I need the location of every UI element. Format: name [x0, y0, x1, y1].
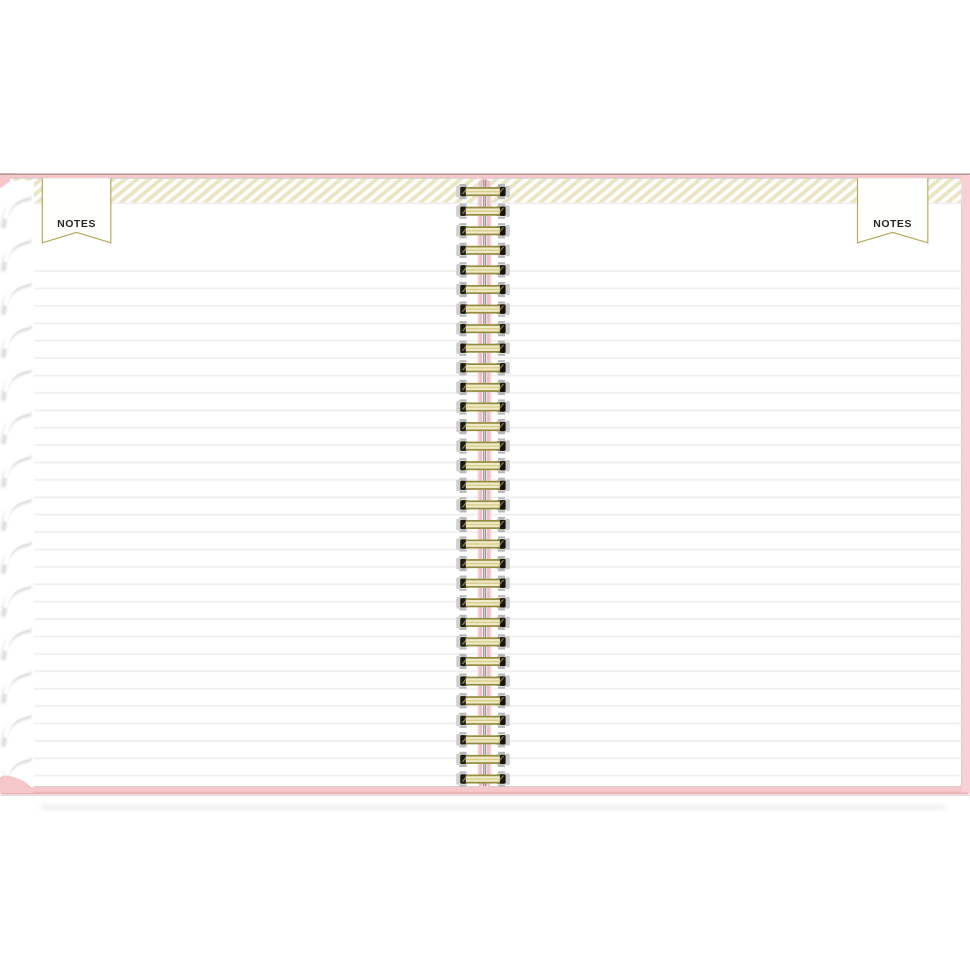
svg-text:NOTES: NOTES — [873, 218, 912, 230]
svg-text:NOTES: NOTES — [57, 218, 96, 230]
